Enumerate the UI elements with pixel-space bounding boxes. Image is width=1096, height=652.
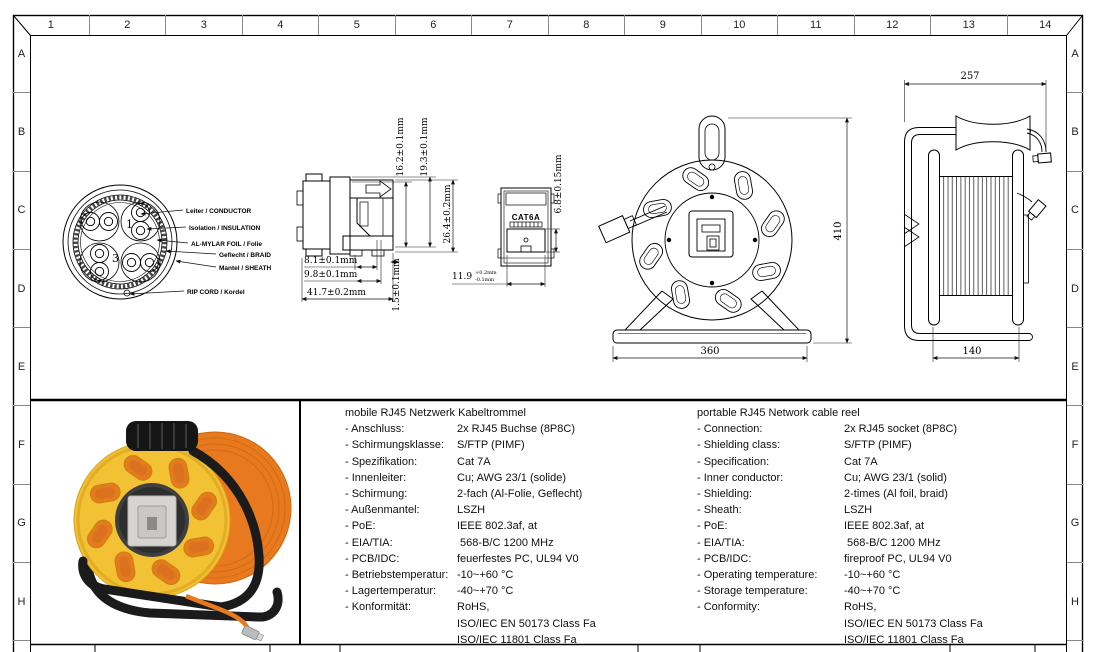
spec-value: 2x RJ45 Buchse (8P8C)	[457, 421, 575, 437]
grid-col-label: 4	[243, 15, 320, 35]
spec-row: - PoE: IEEE 802.3af, at	[697, 518, 1062, 534]
spec-row: - Außenmantel: LSZH	[345, 502, 685, 518]
grid-row-label: B	[13, 93, 30, 171]
spec-row: - Storage temperature: -40~+70 °C	[697, 583, 1062, 599]
pair-number-3: 3	[112, 252, 119, 265]
spec-label: - PCB/IDC:	[697, 551, 844, 567]
spec-label: - Shielding class:	[697, 437, 844, 453]
spec-value: feuerfestes PC, UL94 V0	[457, 551, 579, 567]
dim-140: 140	[962, 346, 981, 357]
spec-label	[345, 616, 457, 632]
reel-flange	[74, 442, 230, 598]
spec-column-english: portable RJ45 Network cable reel - Conne…	[697, 405, 1062, 648]
spec-value: 568-B/C 1200 MHz	[844, 535, 941, 551]
spec-value: RoHS,	[844, 599, 876, 615]
spec-value: -40~+70 °C	[844, 583, 900, 599]
spec-value: Cu; AWG 23/1 (solide)	[457, 470, 566, 486]
spec-row: ISO/IEC EN 50173 Class Fa	[345, 616, 685, 632]
label-foil: AL-MYLAR FOIL / Folie	[191, 241, 262, 248]
spec-value: Cat 7A	[844, 454, 878, 470]
spec-row: - Lagertemperatur: -40~+70 °C	[345, 583, 685, 599]
spec-value: 2x RJ45 socket (8P8C)	[844, 421, 957, 437]
spec-label: - Spezifikation:	[345, 454, 457, 470]
spec-column-german: mobile RJ45 Netzwerk Kabeltrommel - Ansc…	[345, 405, 685, 648]
dim-6-8: 6.8±0.15mm	[554, 154, 564, 213]
spec-row: - Spezifikation: Cat 7A	[345, 454, 685, 470]
spec-value: IEEE 802.3af, at	[844, 518, 924, 534]
spec-row: - Sheath: LSZH	[697, 502, 1062, 518]
label-insulation: Isolation / INSULATION	[189, 225, 261, 232]
spec-value: LSZH	[457, 502, 485, 518]
grid-ruler-top: 1 2 3 4 5 6 7 8 9 10 11 12 13 14	[13, 15, 1083, 35]
grid-row-label: B	[1067, 93, 1083, 171]
grid-col-label: 10	[702, 15, 779, 35]
cable-cross-section-drawing: 1 3 Leiter / CONDUCTOR Isolation / INSUL…	[63, 185, 272, 299]
spec-row: ISO/IEC EN 50173 Class Fa	[697, 616, 1062, 632]
spec-label: - Conformity:	[697, 599, 844, 615]
spec-value: LSZH	[844, 502, 872, 518]
spec-value: ISO/IEC 11801 Class Fa	[844, 632, 964, 648]
spec-label: - Betriebstemperatur:	[345, 567, 457, 583]
spec-row: - Connection: 2x RJ45 socket (8P8C)	[697, 421, 1062, 437]
spec-value: 2-times (Al foil, braid)	[844, 486, 948, 502]
grid-ruler-right: A B C D E F G H	[1067, 15, 1083, 634]
spec-label	[697, 632, 844, 648]
grid-row-label: F	[1067, 406, 1083, 484]
spec-label: - Konformität:	[345, 599, 457, 615]
spec-value: RoHS,	[457, 599, 489, 615]
spec-label: - EIA/TIA:	[345, 535, 457, 551]
grid-row-label: A	[1067, 15, 1083, 93]
grid-col-label: 7	[472, 15, 549, 35]
spec-label: - Schirmungsklasse:	[345, 437, 457, 453]
grid-col-label: 12	[855, 15, 932, 35]
spec-row: - Innenleiter: Cu; AWG 23/1 (solide)	[345, 470, 685, 486]
reel-front-view-drawing: 360 410	[599, 116, 852, 362]
spec-value: -10~+60 °C	[457, 567, 513, 583]
dim-257: 257	[960, 71, 979, 82]
dim-360: 360	[700, 346, 719, 357]
dim-410: 410	[833, 221, 844, 240]
spec-row: - Conformity: RoHS,	[697, 599, 1062, 615]
spec-row: - Shielding class: S/FTP (PIMF)	[697, 437, 1062, 453]
spec-value: fireproof PC, UL94 V0	[844, 551, 952, 567]
label-ripcord: RIP CORD / Kordel	[187, 289, 245, 296]
spec-row: - Betriebstemperatur: -10~+60 °C	[345, 567, 685, 583]
grid-row-label: E	[13, 328, 30, 406]
dim-8-1: 8.1±0.1mm	[304, 256, 358, 266]
spec-row: ISO/IEC 11801 Class Fa	[345, 632, 685, 648]
spec-value: ISO/IEC EN 50173 Class Fa	[844, 616, 983, 632]
spec-title-german: mobile RJ45 Netzwerk Kabeltrommel	[345, 405, 685, 421]
dim-11-9-tol-minus: -0.1mm	[475, 277, 494, 283]
label-braid: Geflecht / BRAID	[219, 252, 271, 259]
spec-row: - EIA/TIA: 568-B/C 1200 MHz	[345, 535, 685, 551]
grid-col-label: 6	[396, 15, 473, 35]
grid-col-label: 2	[90, 15, 167, 35]
spec-label: - Schirmung:	[345, 486, 457, 502]
spec-row: - Anschluss: 2x RJ45 Buchse (8P8C)	[345, 421, 685, 437]
spec-row: - Operating temperature: -10~+60 °C	[697, 567, 1062, 583]
spec-label: - Außenmantel:	[345, 502, 457, 518]
spec-label: - Connection:	[697, 421, 844, 437]
grid-col-label: 11	[778, 15, 855, 35]
spec-value: S/FTP (PIMF)	[844, 437, 912, 453]
spec-value: 2-fach (Al-Folie, Geflecht)	[457, 486, 582, 502]
spec-label: - PoE:	[345, 518, 457, 534]
spec-row: - Schirmung: 2-fach (Al-Folie, Geflecht)	[345, 486, 685, 502]
spec-value: S/FTP (PIMF)	[457, 437, 525, 453]
spec-label	[697, 616, 844, 632]
grid-row-label: D	[13, 250, 30, 328]
dim-9-8: 9.8±0.1mm	[304, 270, 358, 280]
spec-label: - Innenleiter:	[345, 470, 457, 486]
spec-label: - PCB/IDC:	[345, 551, 457, 567]
spec-row: - Shielding: 2-times (Al foil, braid)	[697, 486, 1062, 502]
label-conductor: Leiter / CONDUCTOR	[186, 208, 252, 215]
spec-title-english: portable RJ45 Network cable reel	[697, 405, 1062, 421]
spec-label: - Sheath:	[697, 502, 844, 518]
dim-19-3: 19.3±0.1mm	[420, 117, 430, 176]
dim-11-9: 11.9	[452, 272, 472, 282]
spec-value: Cat 7A	[457, 454, 491, 470]
spec-label: - PoE:	[697, 518, 844, 534]
grid-row-label: G	[1067, 485, 1083, 563]
spec-value: -10~+60 °C	[844, 567, 900, 583]
dim-26-4: 26.4±0.2mm	[443, 184, 453, 243]
spec-row: - EIA/TIA: 568-B/C 1200 MHz	[697, 535, 1062, 551]
spec-row: - PCB/IDC: feuerfestes PC, UL94 V0	[345, 551, 685, 567]
spec-label	[345, 632, 457, 648]
keystone-front-view-drawing: CAT6A 6.8±0.15mm 11.9 +0.2mm -0.	[452, 154, 564, 287]
grid-row-label: E	[1067, 328, 1083, 406]
spec-value: -40~+70 °C	[457, 583, 513, 599]
spec-value: ISO/IEC EN 50173 Class Fa	[457, 616, 596, 632]
pigtail-connector	[241, 625, 264, 642]
spec-value: 568-B/C 1200 MHz	[457, 535, 554, 551]
spec-value: Cu; AWG 23/1 (solid)	[844, 470, 947, 486]
grid-row-label: H	[1067, 563, 1083, 641]
grid-col-label: 13	[931, 15, 1008, 35]
spec-row: - Inner conductor: Cu; AWG 23/1 (solid)	[697, 470, 1062, 486]
spec-label: - Inner conductor:	[697, 470, 844, 486]
spec-value: IEEE 802.3af, at	[457, 518, 537, 534]
spec-row: - PoE: IEEE 802.3af, at	[345, 518, 685, 534]
spec-row: - PCB/IDC: fireproof PC, UL94 V0	[697, 551, 1062, 567]
grid-row-label: G	[13, 485, 30, 563]
pair-number-1: 1	[126, 218, 133, 231]
grid-row-label: C	[13, 172, 30, 250]
grid-ruler-left: A B C D E F G H	[13, 15, 30, 634]
grid-col-label: 3	[166, 15, 243, 35]
reel-side-view-drawing: 257 140	[904, 71, 1051, 362]
grid-row-label: A	[13, 15, 30, 93]
spec-row: - Specification: Cat 7A	[697, 454, 1062, 470]
spec-label: - Operating temperature:	[697, 567, 844, 583]
dim-1-5: 1.5±0.1mm	[392, 258, 402, 312]
grid-row-label: C	[1067, 172, 1083, 250]
datasheet-page: 1 3 Leiter / CONDUCTOR Isolation / INSUL…	[0, 0, 1096, 652]
spec-row: - Schirmungsklasse: S/FTP (PIMF)	[345, 437, 685, 453]
keystone-side-view-drawing: 16.2±0.1mm 19.3±0.1mm 26.4±0.2mm 8.1±0.1…	[297, 117, 458, 312]
grid-col-label: 9	[625, 15, 702, 35]
spec-row: - Konformität: RoHS,	[345, 599, 685, 615]
spec-label: - Shielding:	[697, 486, 844, 502]
grid-col-label: 5	[319, 15, 396, 35]
spec-label: - Specification:	[697, 454, 844, 470]
grid-row-label: H	[13, 563, 30, 641]
dim-41-7: 41.7±0.2mm	[307, 288, 366, 298]
handle-grip	[126, 421, 198, 451]
grid-row-label: D	[1067, 250, 1083, 328]
spec-value: ISO/IEC 11801 Class Fa	[457, 632, 577, 648]
dim-11-9-tol-plus: +0.2mm	[475, 270, 497, 276]
dim-16-2: 16.2±0.1mm	[396, 117, 406, 176]
spec-label: - Lagertemperatur:	[345, 583, 457, 599]
label-sheath: Mantel / SHEATH	[219, 265, 272, 272]
jack-marking: CAT6A	[512, 213, 541, 222]
spec-label: - Anschluss:	[345, 421, 457, 437]
grid-col-label: 8	[549, 15, 626, 35]
grid-row-label: F	[13, 406, 30, 484]
product-photo	[74, 421, 291, 642]
spec-row: ISO/IEC 11801 Class Fa	[697, 632, 1062, 648]
spec-label: - Storage temperature:	[697, 583, 844, 599]
spec-label: - EIA/TIA:	[697, 535, 844, 551]
